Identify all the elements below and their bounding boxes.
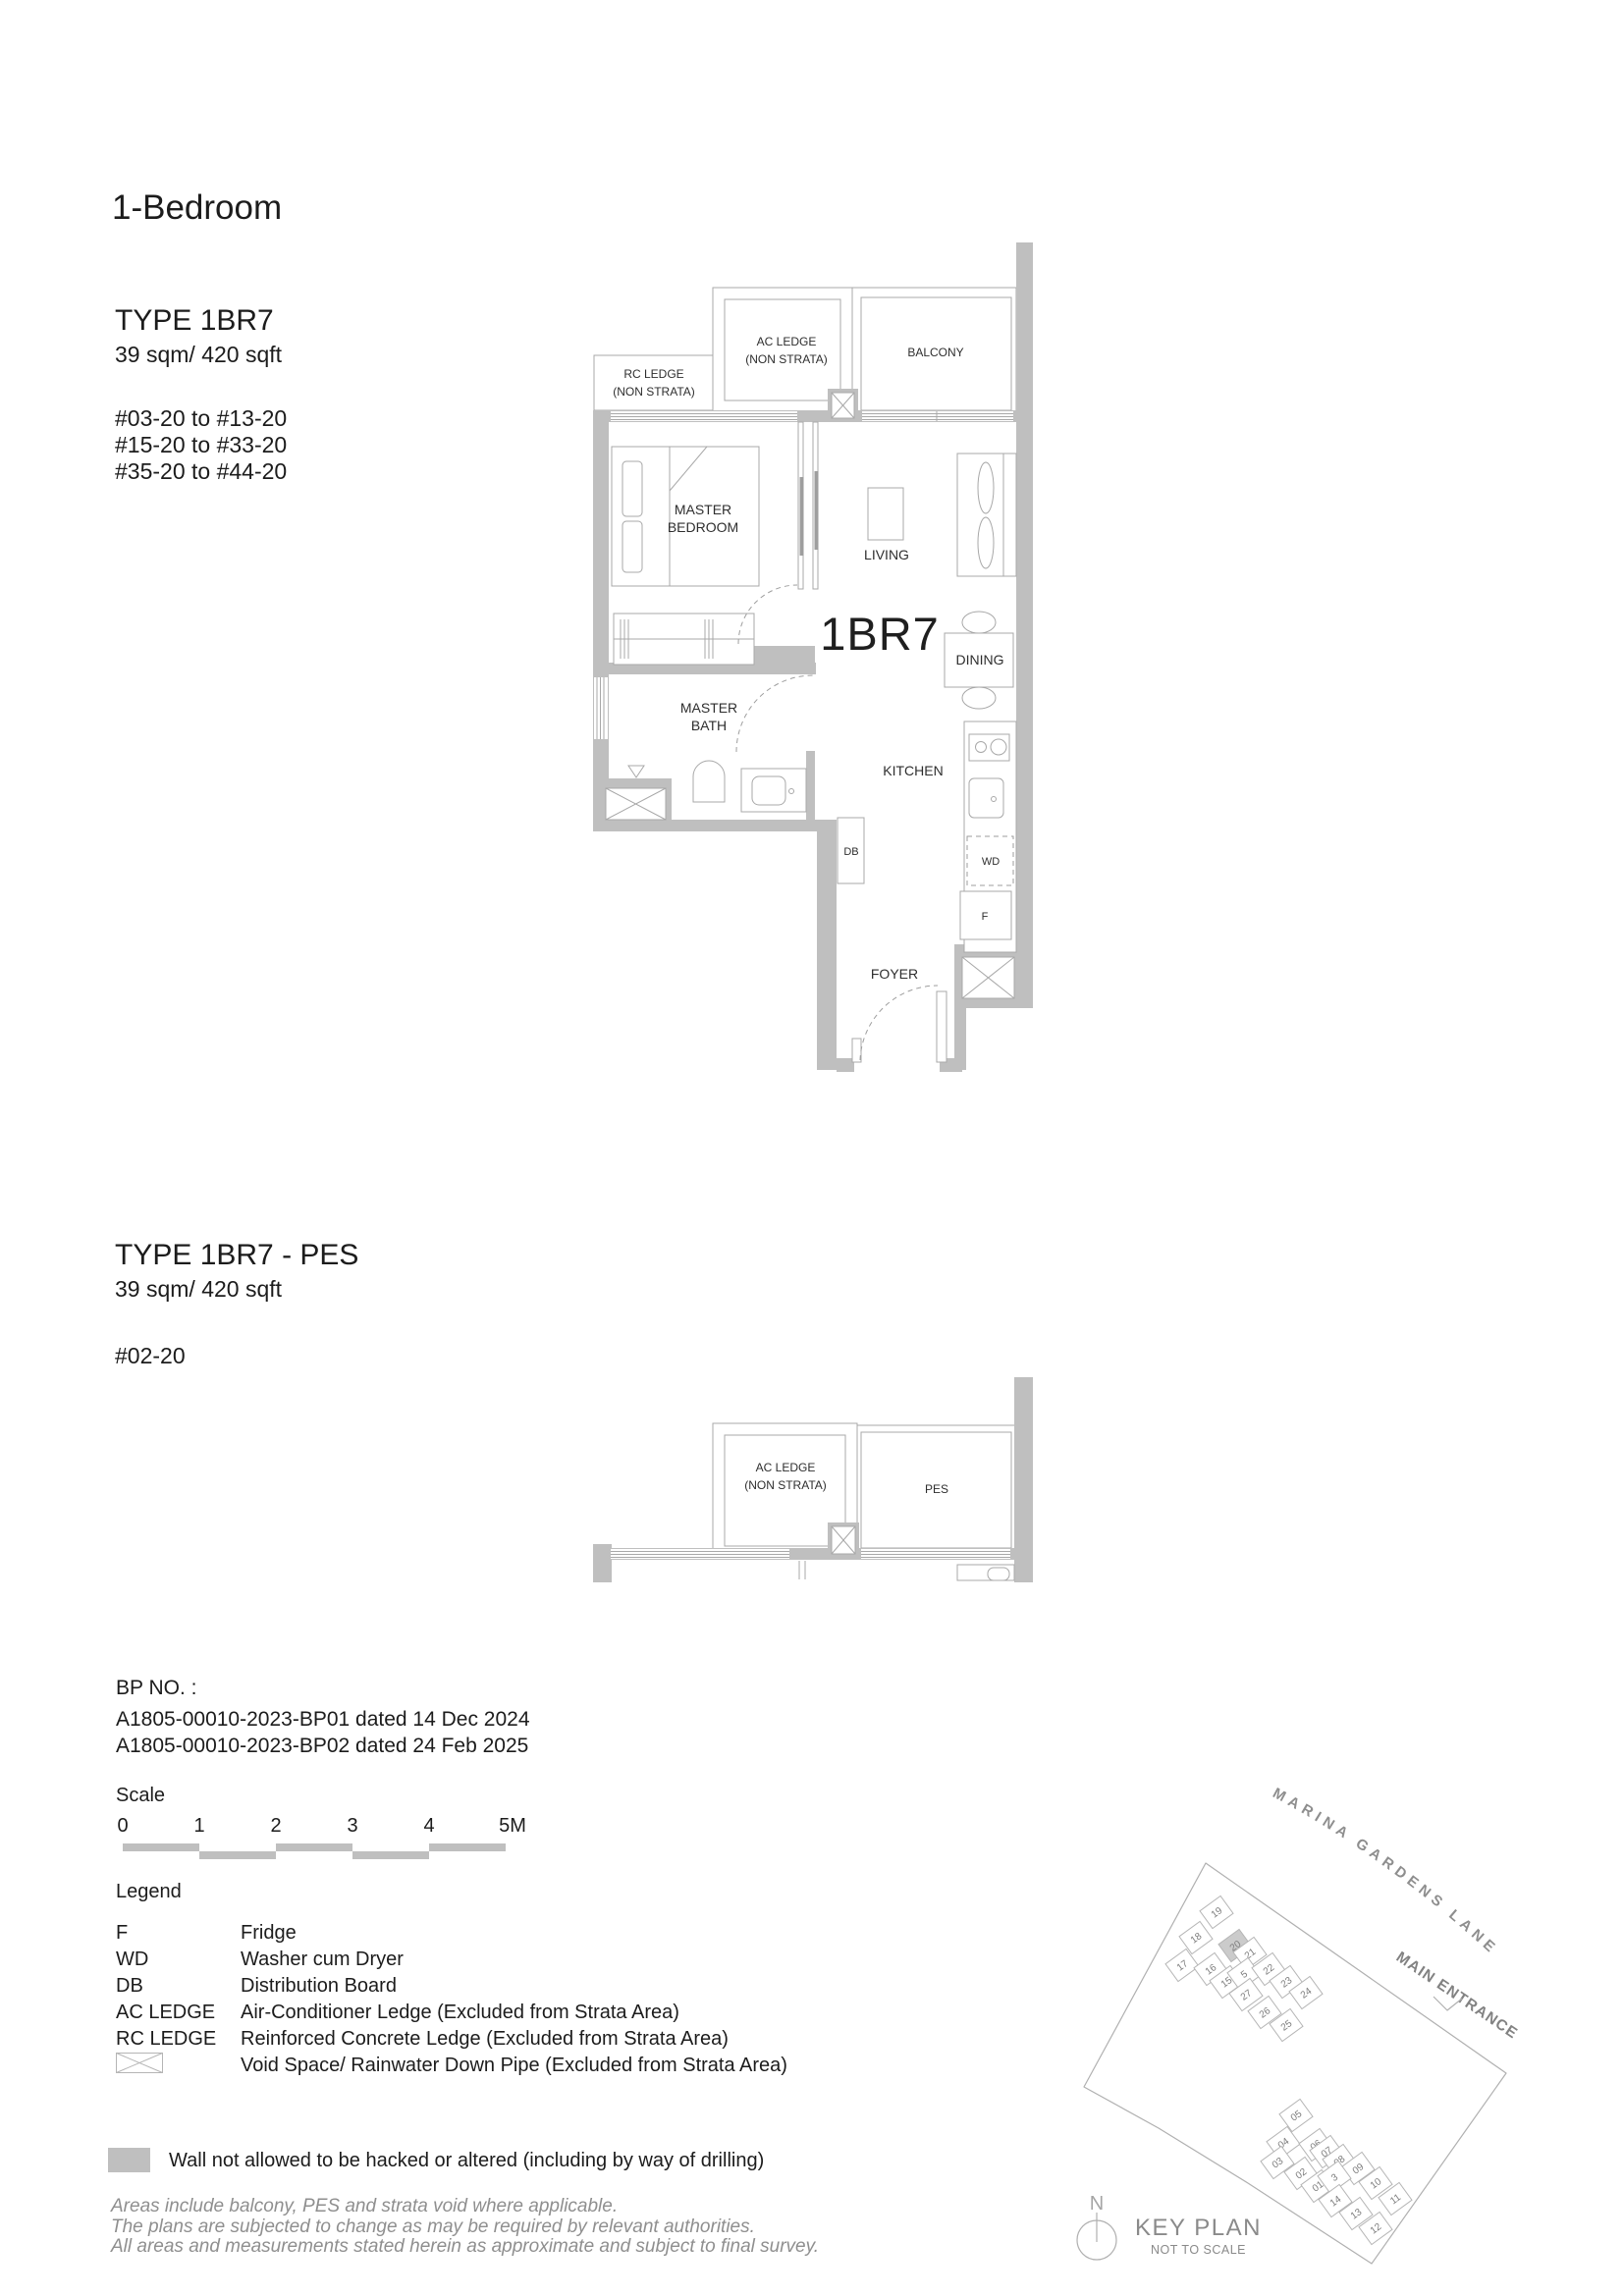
scale-tick: 1: [193, 1815, 204, 1838]
scale-tick: 0: [117, 1815, 128, 1838]
ac-ledge-label: AC LEDGE: [757, 335, 817, 348]
fridge-label: F: [982, 911, 989, 923]
disclaimer-line: Areas include balcony, PES and strata vo…: [111, 2197, 819, 2217]
kitchen-label: KITCHEN: [883, 763, 943, 778]
master-bedroom-label2: BEDROOM: [668, 519, 738, 535]
plan1-area: 39 sqm/ 420 sqft: [115, 342, 282, 368]
legend-desc-void: Void Space/ Rainwater Down Pipe (Exclude…: [241, 2055, 787, 2077]
ac-ledge-pes-label: AC LEDGE: [756, 1461, 816, 1474]
legend-desc: Fridge: [241, 1922, 297, 1945]
foyer-label: FOYER: [871, 966, 918, 982]
legend-desc: Distribution Board: [241, 1975, 397, 1998]
dining-label: DINING: [956, 652, 1004, 667]
keyplan-title: KEY PLAN: [1135, 2215, 1262, 2241]
plan2-unit-line: #02-20: [115, 1343, 186, 1369]
kitchen-sink: [969, 778, 1003, 818]
disclaimer: Areas include balcony, PES and strata vo…: [111, 2197, 819, 2258]
wall-note: Wall not allowed to be hacked or altered…: [169, 2150, 764, 2172]
sofa: [957, 454, 1016, 576]
rc-ledge-label: RC LEDGE: [623, 367, 683, 381]
master-bedroom-label: MASTER: [675, 502, 731, 517]
floorplan-brochure-page: RC LEDGE (NON STRATA) AC LEDGE (NON STRA…: [0, 0, 1623, 2296]
basin: [752, 776, 785, 805]
keyplan: MARINA GARDENS LANE MAIN ENTRANCE 191817…: [1077, 1785, 1545, 2264]
legend-term: AC LEDGE: [116, 2002, 215, 2024]
bp-line: A1805-00010-2023-BP02 dated 24 Feb 2025: [116, 1733, 528, 1759]
plan2-type-title: TYPE 1BR7 - PES: [115, 1239, 358, 1272]
sliding-partition: [798, 422, 819, 589]
kitchen-fixtures: [838, 721, 1016, 952]
plan1-unit-line: #35-20 to #44-20: [115, 458, 287, 485]
rc-ledge-label2: (NON STRATA): [613, 385, 695, 399]
unit-type-watermark: 1BR7: [820, 608, 940, 660]
scale-tick: 2: [270, 1815, 281, 1838]
plan1-unit-line: #03-20 to #13-20: [115, 405, 287, 432]
wall-swatch-icon: [108, 2148, 150, 2172]
void-space-box-pes: [832, 1526, 855, 1554]
master-bath-label: MASTER: [680, 700, 737, 716]
wd-label: WD: [982, 856, 1000, 868]
legend-term: F: [116, 1922, 128, 1945]
db-label: DB: [843, 846, 858, 858]
keyplan-units: 1918171615202152223242726250504030607080…: [1165, 1896, 1412, 2244]
legend-desc: Reinforced Concrete Ledge (Excluded from…: [241, 2028, 729, 2051]
wardrobe: [614, 614, 754, 665]
plan2-area: 39 sqm/ 420 sqft: [115, 1276, 282, 1303]
void-space-icon: [116, 2053, 163, 2073]
north-label: N: [1090, 2193, 1104, 2215]
plan1-unit-line: #15-20 to #33-20: [115, 432, 287, 458]
scale-label: Scale: [116, 1785, 165, 1807]
plan1-unit-range: #03-20 to #13-20 #15-20 to #33-20 #35-20…: [115, 405, 287, 485]
ac-ledge-label2: (NON STRATA): [745, 352, 828, 366]
master-bath-label2: BATH: [691, 718, 727, 733]
ac-ledge-pes-label2: (NON STRATA): [744, 1478, 827, 1492]
balcony-label: BALCONY: [907, 346, 963, 359]
plan1-type-title: TYPE 1BR7: [115, 304, 274, 338]
legend-term: WD: [116, 1949, 148, 1971]
living-label: LIVING: [864, 547, 909, 562]
scale-tick: 3: [347, 1815, 357, 1838]
main-entrance-label: MAIN ENTRANCE: [1393, 1949, 1521, 2043]
toilet: [693, 761, 725, 802]
disclaimer-line: All areas and measurements stated herein…: [111, 2237, 819, 2258]
bp-line: A1805-00010-2023-BP01 dated 14 Dec 2024: [116, 1706, 530, 1733]
bp-title: BP NO. :: [116, 1675, 196, 1701]
legend-desc: Washer cum Dryer: [241, 1949, 404, 1971]
legend-desc: Air-Conditioner Ledge (Excluded from Str…: [241, 2002, 679, 2024]
coffee-table: [868, 488, 903, 540]
scale-tick: 4: [423, 1815, 434, 1838]
rc-ledge-area: [594, 355, 713, 410]
keyplan-subtitle: NOT TO SCALE: [1151, 2243, 1246, 2257]
disclaimer-line: The plans are subjected to change as may…: [111, 2217, 819, 2238]
site-boundary: [1084, 1863, 1506, 2264]
scale-tick: 5M: [499, 1815, 526, 1838]
legend-term: RC LEDGE: [116, 2028, 216, 2051]
cutoff-stubs: [799, 1561, 1014, 1580]
north-compass-icon: N: [1077, 2193, 1116, 2260]
page-title: 1-Bedroom: [112, 188, 282, 228]
legend-term: DB: [116, 1975, 143, 1998]
legend-title: Legend: [116, 1881, 182, 1903]
shower-drain: [628, 766, 644, 777]
floorplan-1br7: RC LEDGE (NON STRATA) AC LEDGE (NON STRA…: [593, 242, 1033, 1072]
floorplan-1br7-pes: AC LEDGE (NON STRATA) PES: [593, 1377, 1033, 1582]
pes-label: PES: [925, 1482, 948, 1496]
